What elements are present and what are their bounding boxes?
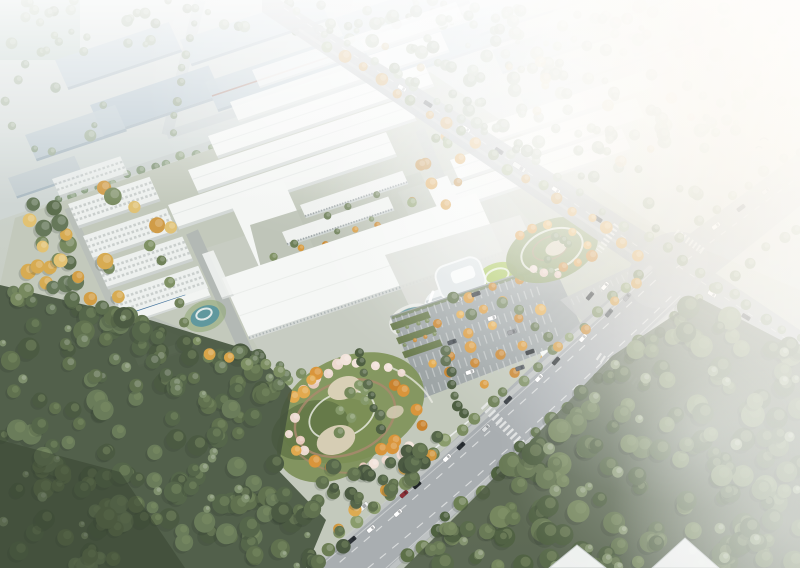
scene-canvas (0, 0, 800, 568)
aerial-render-image (0, 0, 800, 568)
haze (0, 0, 800, 568)
